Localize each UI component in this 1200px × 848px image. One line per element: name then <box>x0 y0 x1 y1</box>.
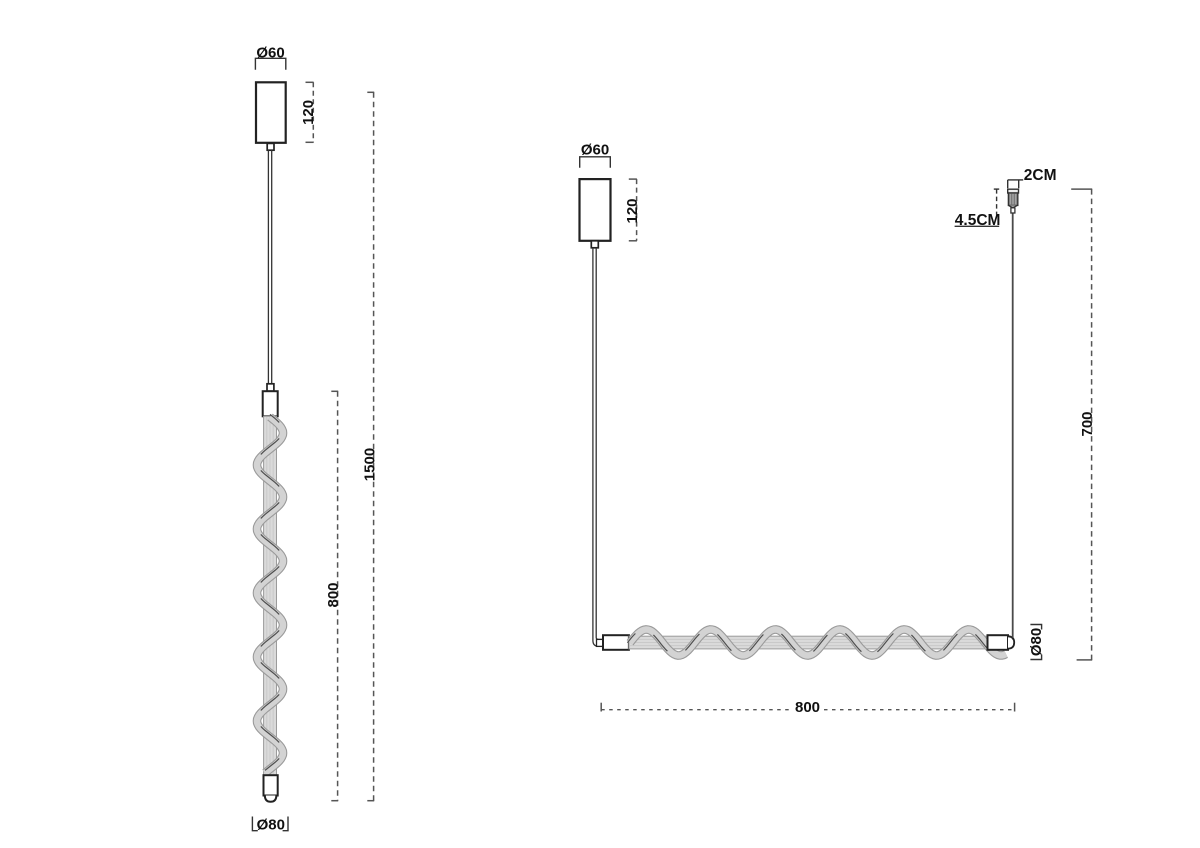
svg-text:700: 700 <box>1079 411 1096 436</box>
svg-text:2CM: 2CM <box>1024 167 1057 184</box>
svg-text:Ø80: Ø80 <box>1028 628 1045 656</box>
svg-text:800: 800 <box>795 699 820 716</box>
svg-text:4.5CM: 4.5CM <box>955 212 1001 229</box>
svg-text:Ø80: Ø80 <box>257 817 285 834</box>
svg-text:800: 800 <box>325 582 342 607</box>
svg-text:120: 120 <box>300 100 317 125</box>
svg-text:120: 120 <box>624 198 641 223</box>
svg-text:1500: 1500 <box>361 448 378 481</box>
svg-text:Ø60: Ø60 <box>581 142 609 159</box>
